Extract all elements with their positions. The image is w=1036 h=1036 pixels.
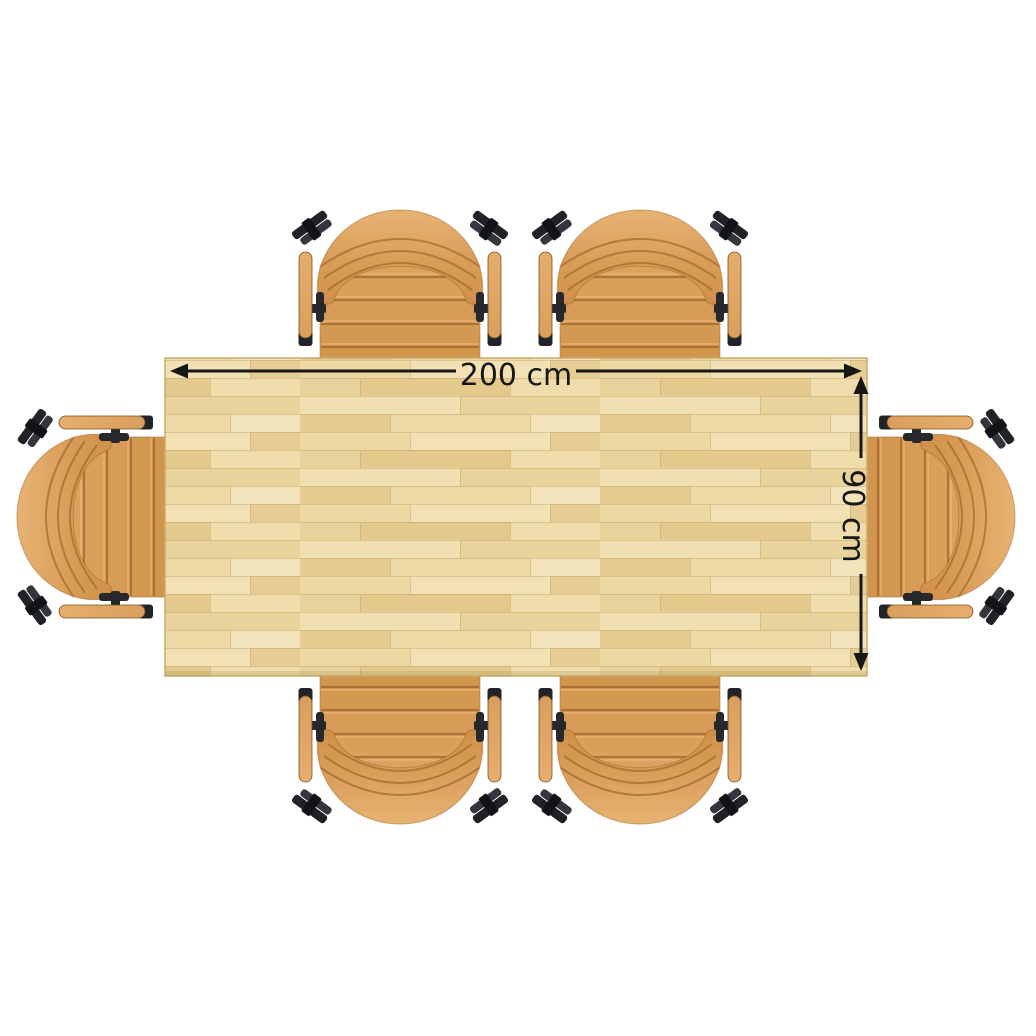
- table-width-label: 200 cm: [460, 358, 573, 393]
- table: [165, 358, 867, 676]
- chair-top-left: [290, 208, 511, 366]
- furniture-top-view-diagram: 200 cm 90 cm: [0, 0, 1036, 1036]
- chair-bottom-left: [290, 668, 511, 826]
- chair-right: [859, 407, 1017, 628]
- chair-top-right: [530, 208, 751, 366]
- table-depth-label: 90 cm: [835, 469, 870, 562]
- table-edge-shadow: [165, 671, 867, 676]
- chair-left: [15, 407, 173, 628]
- table-top: [165, 358, 867, 676]
- chair-bottom-right: [530, 668, 751, 826]
- diagram-svg: 200 cm 90 cm: [0, 0, 1036, 1036]
